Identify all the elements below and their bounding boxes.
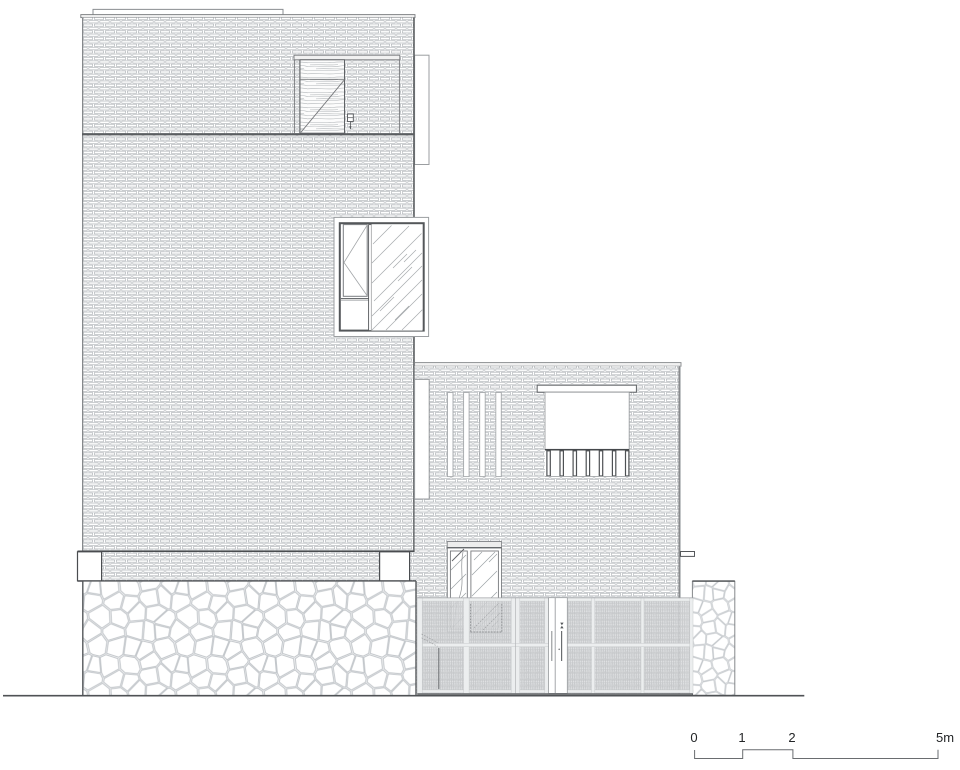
svg-text:0: 0 [690, 730, 697, 745]
svg-text:1: 1 [738, 730, 745, 745]
svg-text:5m: 5m [936, 730, 954, 745]
svg-text:2: 2 [788, 730, 795, 745]
